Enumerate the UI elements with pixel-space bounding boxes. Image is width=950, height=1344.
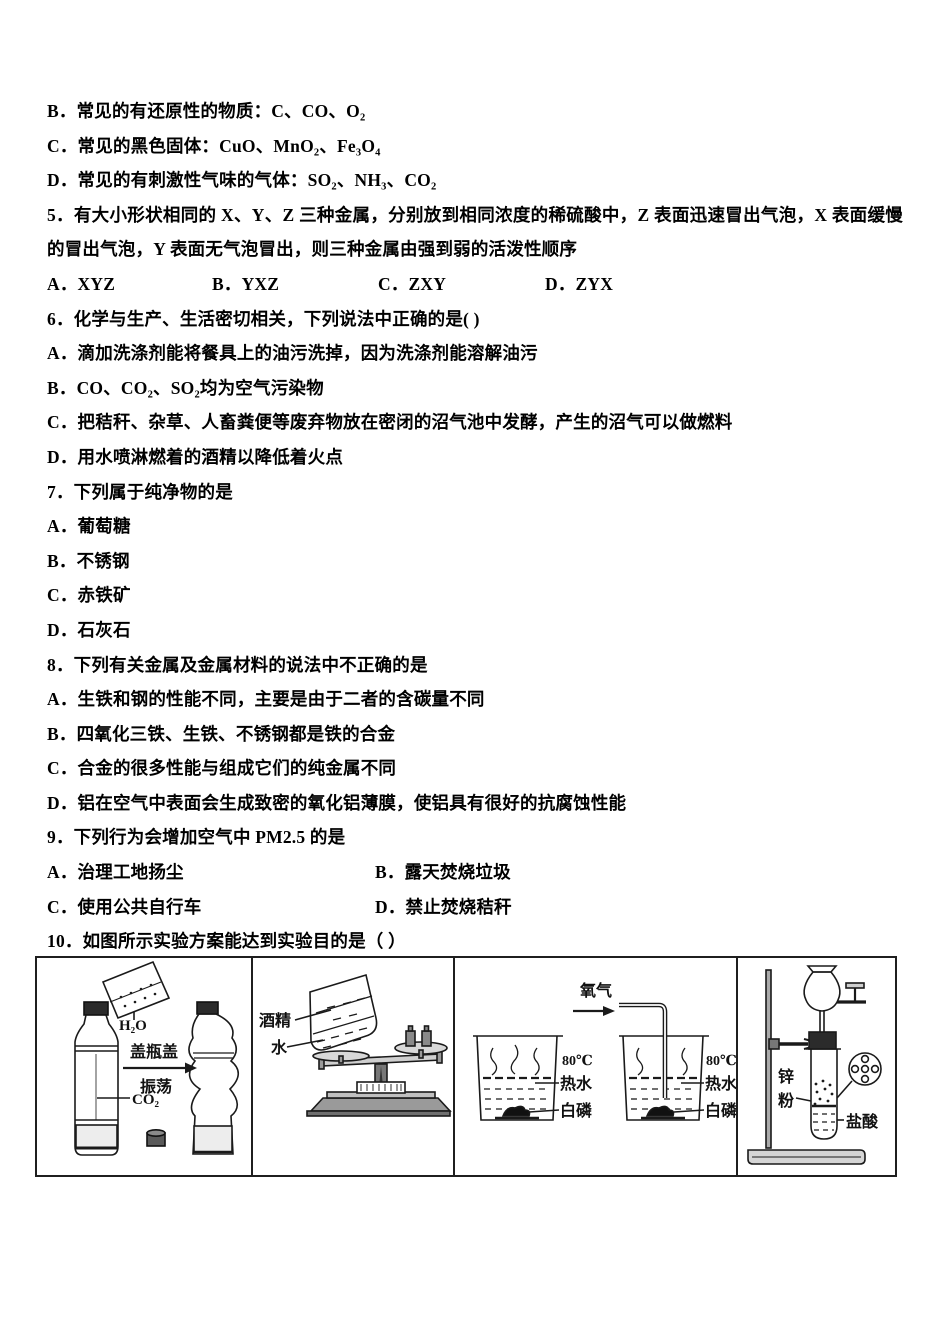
q8-stem: 8．下列有关金属及金属材料的说法中不正确的是 bbox=[47, 648, 903, 683]
q5-option-a: A．XYZ bbox=[47, 267, 212, 302]
q10-experiment-figure: H₂O 盖瓶盖 振荡 CO₂ bbox=[35, 956, 897, 1177]
q9-option-d: D．禁止焚烧秸秆 bbox=[375, 890, 903, 925]
temp-label-right: 80℃ bbox=[706, 1054, 736, 1069]
white-phosphorus-label-right: 白磷 bbox=[705, 1101, 736, 1120]
q4-option-b: B．常见的有还原性的物质：C、CO、O₂ bbox=[47, 94, 903, 129]
temp-label-left: 80℃ bbox=[562, 1054, 593, 1069]
q9-option-c: C．使用公共自行车 bbox=[47, 890, 375, 925]
q8-option-d: D．铝在空气中表面会生成致密的氧化铝薄膜，使铝具有很好的抗腐蚀性能 bbox=[47, 786, 903, 821]
q5-option-b: B．YXZ bbox=[212, 267, 378, 302]
q9-option-b: B．露天焚烧垃圾 bbox=[375, 855, 903, 890]
zinc-label-line1: 锌 bbox=[778, 1067, 794, 1086]
white-phosphorus-drawing: 氧气 80℃ 热水 白磷 80℃ 热水 白磷 bbox=[455, 958, 736, 1175]
zinc-powder-dots bbox=[814, 1080, 834, 1106]
pouring-beaker-icon bbox=[103, 962, 169, 1020]
white-phosphorus-label-left: 白磷 bbox=[560, 1101, 593, 1120]
q10-panel-c: 氧气 80℃ 热水 白磷 80℃ 热水 白磷 bbox=[453, 958, 736, 1175]
q10-stem: 10．如图所示实验方案能达到实验目的是（ ） bbox=[47, 924, 903, 959]
oxygen-label: 氧气 bbox=[579, 981, 612, 1000]
test-tube-icon bbox=[806, 1032, 841, 1139]
h2o-label: H₂O bbox=[119, 1018, 147, 1034]
co2-water-bottle-drawing: H₂O 盖瓶盖 振荡 CO₂ bbox=[37, 958, 251, 1175]
q9-options-row-1: A．治理工地扬尘 B．露天焚烧垃圾 bbox=[47, 855, 903, 890]
q6-option-a: A．滴加洗涤剂能将餐具上的油污洗掉，因为洗涤剂能溶解油污 bbox=[47, 336, 903, 371]
hydrochloric-acid-label: 盐酸 bbox=[846, 1112, 879, 1131]
q6-option-d: D．用水喷淋燃着的酒精以降低着火点 bbox=[47, 440, 903, 475]
zinc-acid-generator-drawing: 锌 粉 盐酸 bbox=[738, 958, 895, 1175]
crushed-bottle-icon bbox=[189, 1002, 238, 1154]
separating-funnel-icon bbox=[804, 966, 866, 1034]
exam-document-page: B．常见的有还原性的物质：C、CO、O₂ C．常见的黑色固体：CuO、MnO₂、… bbox=[0, 0, 950, 1344]
q7-option-d: D．石灰石 bbox=[47, 613, 903, 648]
hot-water-label-left: 热水 bbox=[560, 1074, 593, 1093]
q5-stem: 5．有大小形状相同的 X、Y、Z 三种金属，分别放到相同浓度的稀硫酸中，Z 表面… bbox=[47, 198, 903, 267]
q6-option-c: C．把秸秆、杂草、人畜粪便等废弃物放在密闭的沼气池中发酵，产生的沼气可以做燃料 bbox=[47, 405, 903, 440]
q7-option-a: A．葡萄糖 bbox=[47, 509, 903, 544]
q6-stem: 6．化学与生产、生活密切相关，下列说法中正确的是( ) bbox=[47, 302, 903, 337]
q7-option-b: B．不锈钢 bbox=[47, 544, 903, 579]
q10-panel-a: H₂O 盖瓶盖 振荡 CO₂ bbox=[37, 958, 251, 1175]
upright-bottle-icon bbox=[75, 1002, 118, 1155]
q10-panel-d: 锌 粉 盐酸 bbox=[736, 958, 895, 1175]
q4-option-d: D．常见的有刺激性气味的气体：SO₂、NH₃、CO₂ bbox=[47, 163, 903, 198]
q5-options-row: A．XYZ B．YXZ C．ZXY D．ZYX bbox=[47, 267, 903, 302]
cap-bottle-step-label: 盖瓶盖 bbox=[130, 1042, 178, 1061]
water-label: 水 bbox=[271, 1038, 288, 1057]
alcohol-water-balance-drawing: 酒精 水 bbox=[253, 958, 453, 1175]
hot-water-label-right: 热水 bbox=[705, 1074, 736, 1093]
q8-option-a: A．生铁和钢的性能不同，主要是由于二者的含碳量不同 bbox=[47, 682, 903, 717]
q4-option-c: C．常见的黑色固体：CuO、MnO₂、Fe₃O₄ bbox=[47, 129, 903, 164]
q9-option-a: A．治理工地扬尘 bbox=[47, 855, 375, 890]
q9-options-row-2: C．使用公共自行车 D．禁止焚烧秸秆 bbox=[47, 890, 903, 925]
loose-cap-icon bbox=[147, 1130, 165, 1146]
q7-stem: 7．下列属于纯净物的是 bbox=[47, 475, 903, 510]
q8-option-b: B．四氧化三铁、生铁、不锈钢都是铁的合金 bbox=[47, 717, 903, 752]
zinc-label-line2: 粉 bbox=[778, 1091, 794, 1110]
q7-option-c: C．赤铁矿 bbox=[47, 578, 903, 613]
q9-stem: 9．下列行为会增加空气中 PM2.5 的是 bbox=[47, 820, 903, 855]
left-beaker-icon bbox=[473, 1036, 563, 1120]
question-text-block: B．常见的有还原性的物质：C、CO、O₂ C．常见的黑色固体：CuO、MnO₂、… bbox=[47, 94, 903, 959]
q5-option-d: D．ZYX bbox=[545, 267, 903, 302]
iron-stand-icon bbox=[748, 970, 865, 1164]
co2-label: CO₂ bbox=[132, 1092, 160, 1108]
q10-panel-b: 酒精 水 bbox=[251, 958, 453, 1175]
perforated-plate-detail-icon bbox=[837, 1053, 881, 1098]
q5-option-c: C．ZXY bbox=[378, 267, 545, 302]
alcohol-label: 酒精 bbox=[259, 1011, 291, 1030]
q8-option-c: C．合金的很多性能与组成它们的纯金属不同 bbox=[47, 751, 903, 786]
q6-option-b: B．CO、CO₂、SO₂均为空气污染物 bbox=[47, 371, 903, 406]
